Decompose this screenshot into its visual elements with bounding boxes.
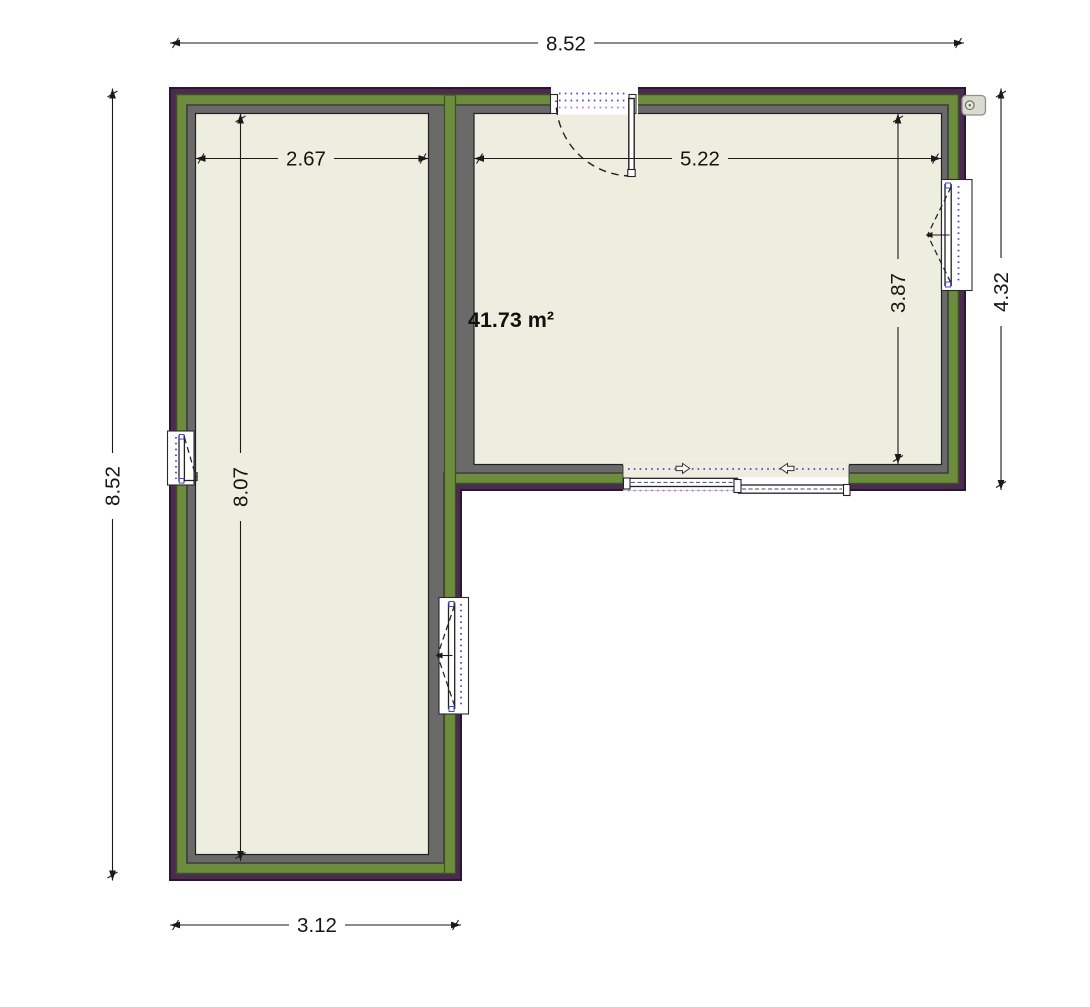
dim-label-left-room-width: 2.67 [286, 148, 326, 171]
sash-handle [179, 435, 184, 440]
floor-plan-svg: 8.52 8.52 4.32 3.12 [0, 0, 1090, 1007]
dim-label-left-wing-width: 3.12 [297, 914, 337, 937]
sliding-jamb-right [844, 485, 851, 496]
dim-left-wing-width: 3.12 [170, 914, 461, 937]
dim-label-right-wing-height: 4.32 [990, 272, 1013, 312]
sash-handle [449, 707, 454, 712]
dim-overall-width: 8.52 [170, 33, 964, 56]
dim-label-left-room-depth: 8.07 [230, 467, 253, 507]
dim-label-right-room-width: 5.22 [680, 148, 720, 171]
panel-junction [734, 480, 741, 493]
door-leaf-endcap [628, 170, 635, 177]
sliding-opening-floor [623, 464, 849, 478]
dim-overall-height: 8.52 [102, 89, 125, 881]
outlet-pin [969, 104, 972, 107]
door-leaf [629, 99, 634, 176]
dim-label-right-room-depth: 3.87 [887, 273, 910, 313]
area-label: 41.73 m² [468, 308, 554, 332]
window-lower [436, 598, 469, 715]
sash-handle [179, 479, 184, 484]
sash-handle [946, 183, 951, 188]
sliding-jamb-left [624, 478, 631, 489]
sash-handle [946, 282, 951, 287]
floor-plan-canvas: 8.52 8.52 4.32 3.12 [0, 0, 1090, 1007]
window-sash [179, 436, 184, 481]
dim-label-overall-height: 8.52 [102, 466, 125, 506]
sliding-door [623, 463, 850, 495]
divider-wall-core [445, 95, 456, 874]
sash-handle [449, 602, 454, 607]
power-outlet-icon [962, 96, 986, 116]
dim-right-wing-height: 4.32 [990, 89, 1013, 491]
window-left [168, 431, 198, 485]
dim-label-overall-width: 8.52 [546, 33, 586, 56]
